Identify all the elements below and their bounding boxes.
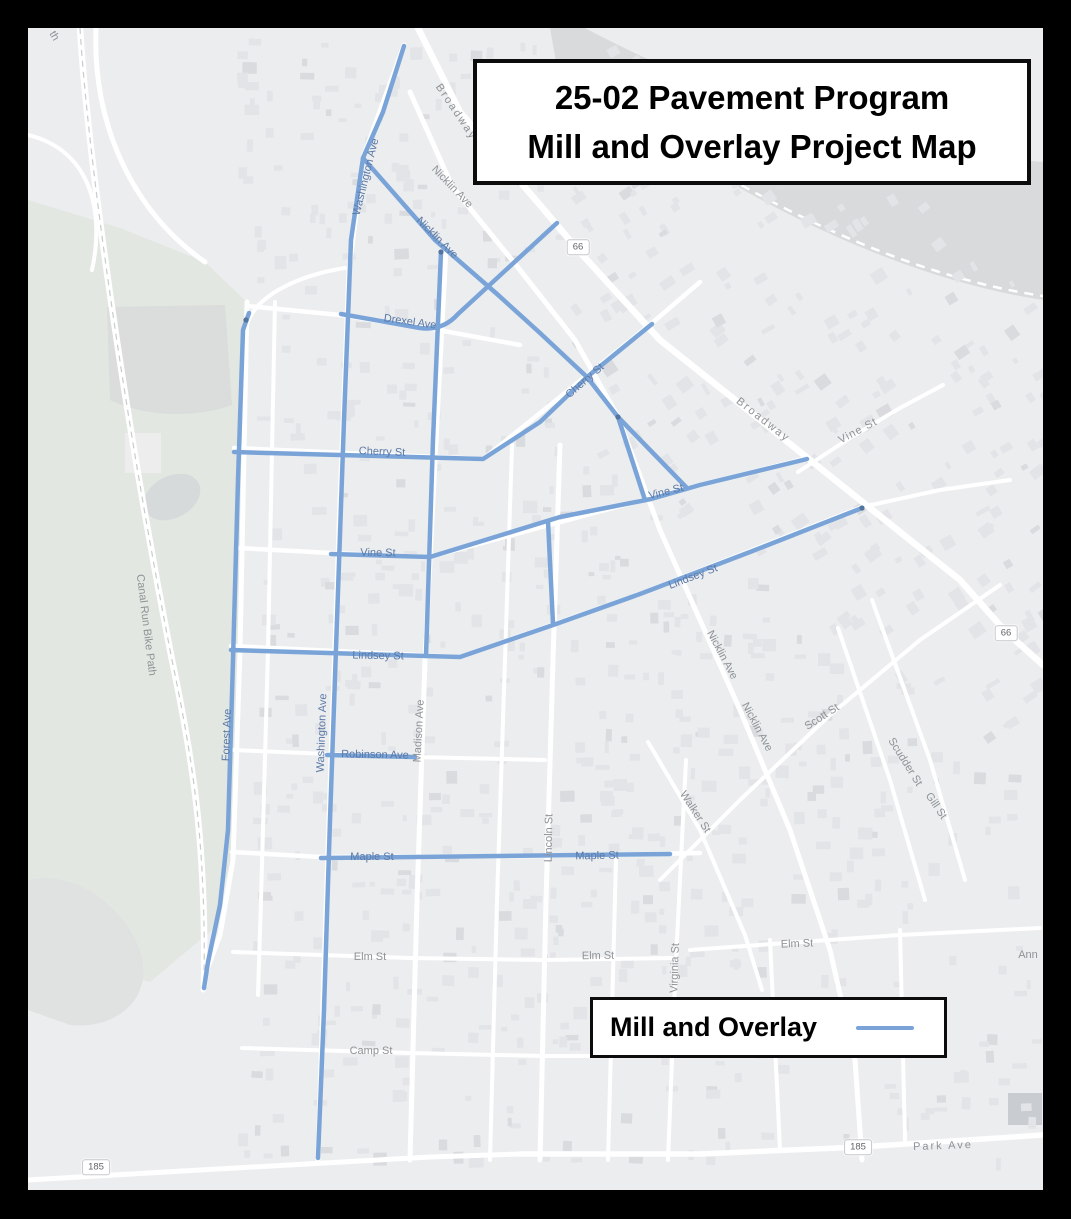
route-robinson-ave xyxy=(327,755,415,757)
legend-label: Mill and Overlay xyxy=(610,1012,817,1043)
legend-line-swatch xyxy=(856,1026,914,1030)
legend-box: Mill and Overlay xyxy=(590,997,947,1058)
page-title-line2: Mill and Overlay Project Map xyxy=(527,122,976,172)
title-box: 25-02 Pavement Program Mill and Overlay … xyxy=(473,59,1031,185)
project-map-page: thBroadwayNicklin AveNicklin AveWashingt… xyxy=(0,0,1071,1219)
page-title-line1: 25-02 Pavement Program xyxy=(555,73,949,123)
